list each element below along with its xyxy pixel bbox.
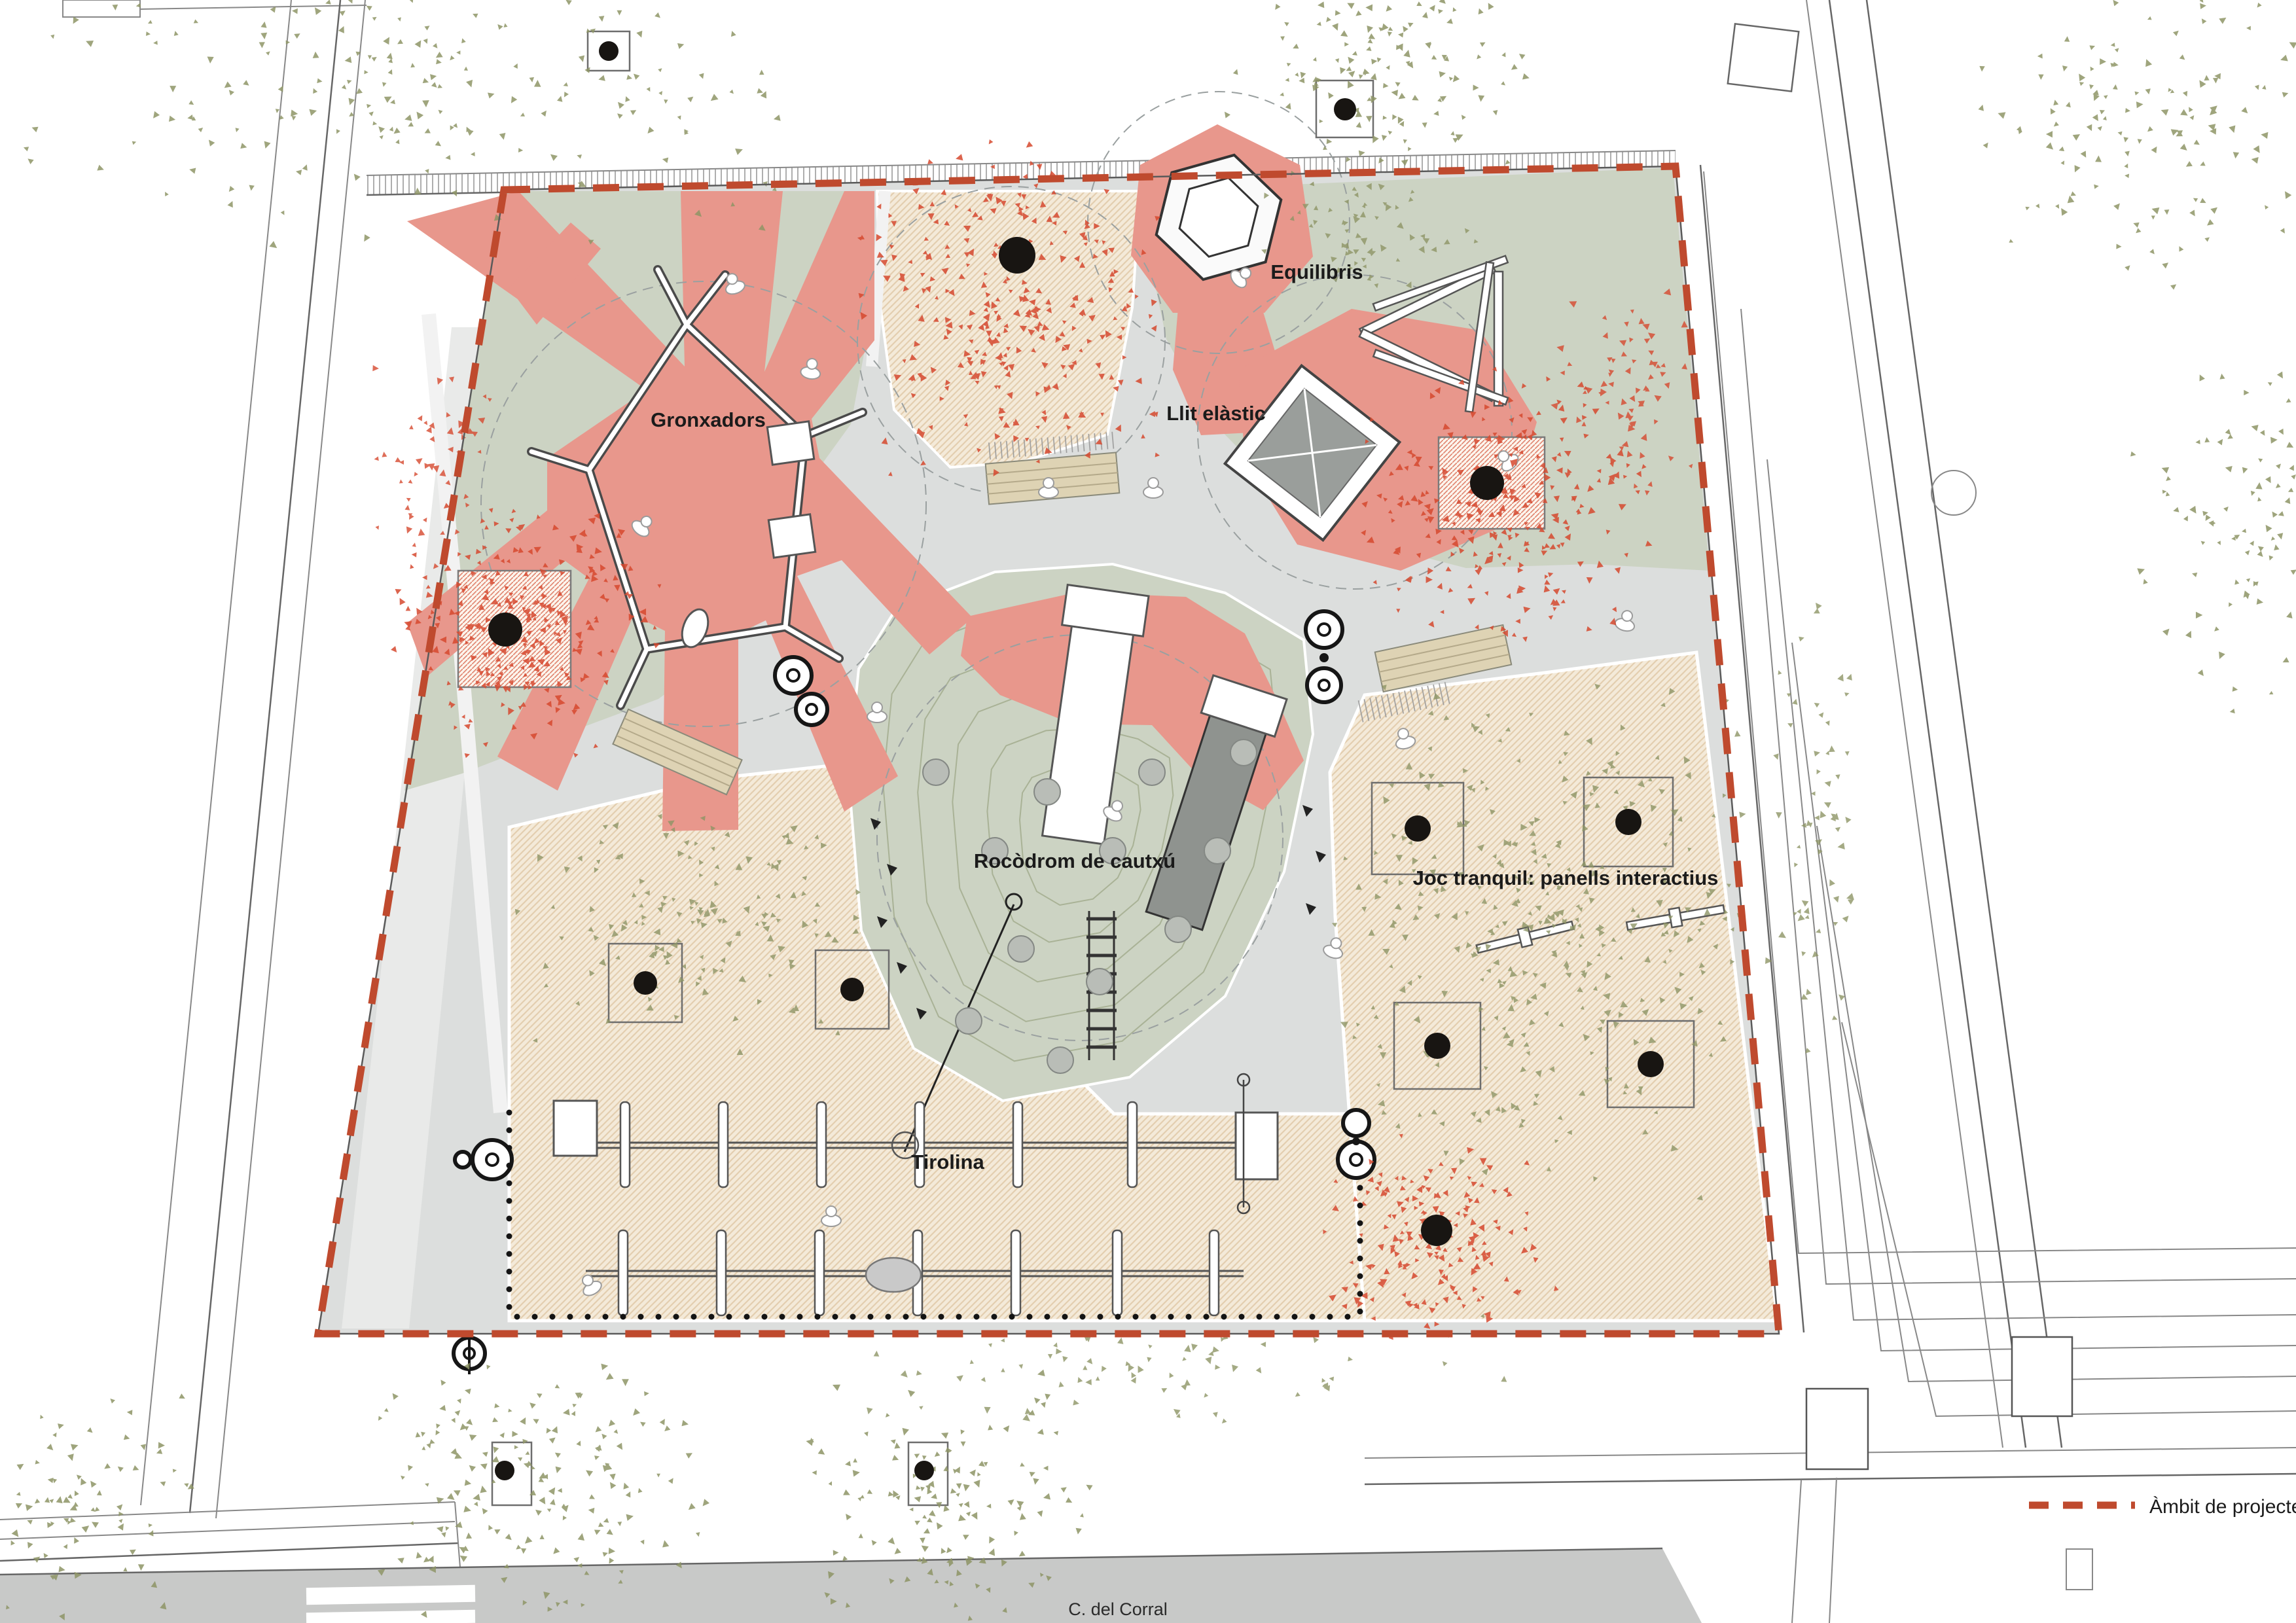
label-gronxadors: Gronxadors [651,408,766,431]
legend-label: Àmbit de projecte: 906 m² [2149,1496,2296,1518]
access-gate [1338,1110,1374,1178]
label-joc-tranquil: Joc tranquil: panells interactius [1413,866,1719,889]
swing-seat [767,421,814,465]
street-name-label: C. del Corral [1068,1599,1168,1619]
crosswalk-stripe [306,1585,475,1605]
site-plan: Gronxadors Equilibris Llit elàstic Rocòd… [0,0,2296,1623]
label-tirolina: Tirolina [911,1150,984,1173]
label-rocodrom: Rocòdrom de cautxú [974,849,1175,872]
zipline-trolley [866,1258,921,1292]
label-llit-elastic: Llit elàstic [1166,402,1266,425]
label-equilibris: Equilibris [1270,260,1363,283]
planter-box-outline [1806,1389,1868,1469]
site-plan-drawing: Gronxadors Equilibris Llit elàstic Rocòd… [0,0,2296,1623]
swing-seat [768,514,815,558]
planter-box-outline [2012,1337,2072,1416]
